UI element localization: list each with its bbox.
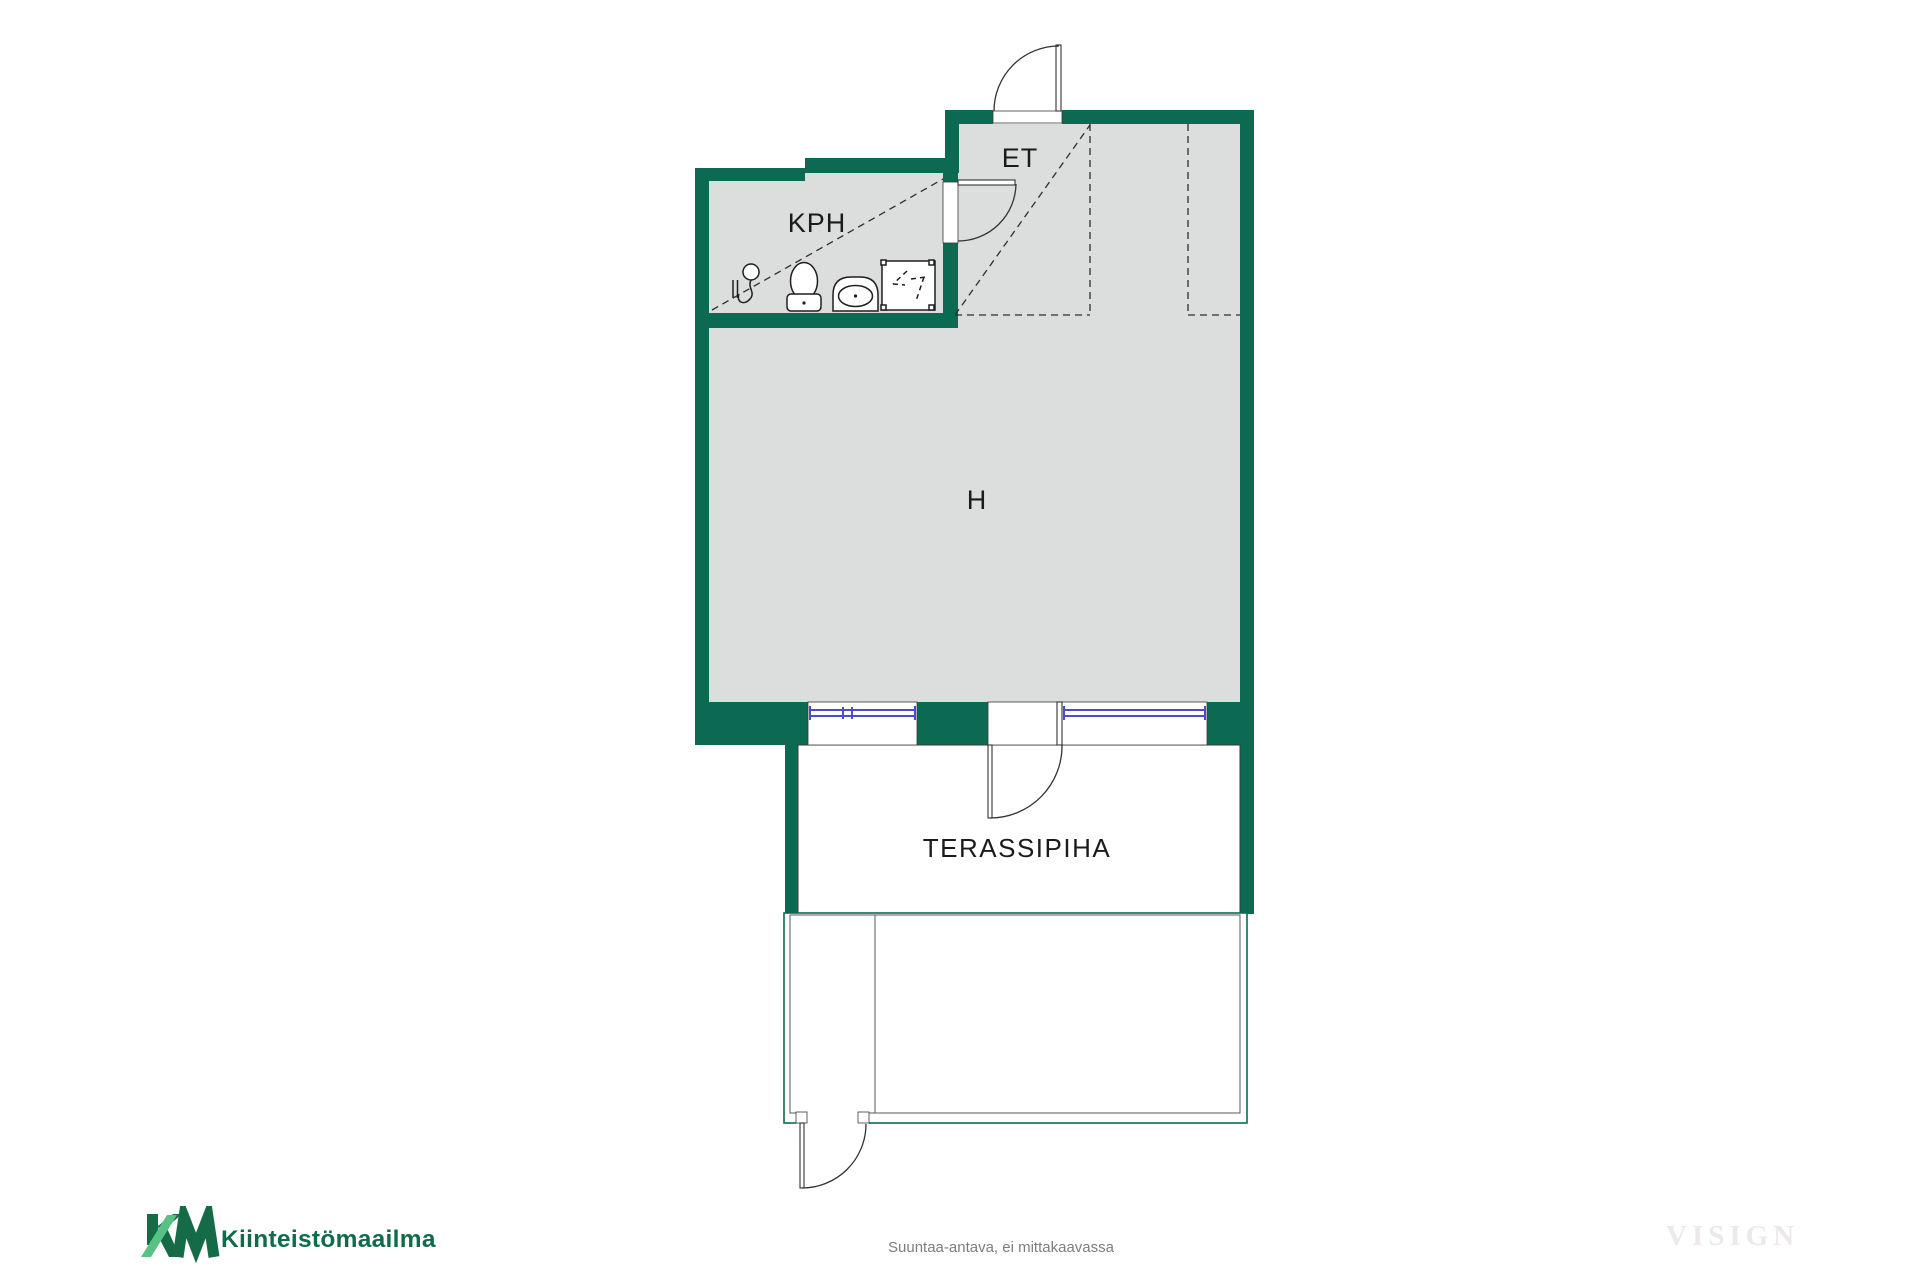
room-label-kph: KPH — [788, 208, 847, 238]
agency-logo-text: Kiinteistömaailma — [221, 1226, 436, 1254]
deck-door-swing-arc — [802, 1124, 866, 1188]
terrace-door-gap — [988, 702, 1062, 745]
entrance-door-swing-arc — [994, 46, 1059, 111]
entrance-threshold — [993, 111, 1062, 123]
disclaimer-text: Suuntaa-antava, ei mittakaavassa — [888, 1239, 1114, 1256]
entrance-door-leaf — [1056, 45, 1061, 111]
wall-segment — [805, 158, 959, 173]
shower-enclosure-icon — [881, 260, 935, 310]
deck-area — [784, 913, 1247, 1128]
wall-segment — [1207, 702, 1254, 745]
window-frame — [1062, 702, 1207, 745]
window-frame — [808, 702, 917, 745]
wall-segment — [695, 168, 805, 181]
deck-door-jamb — [858, 1112, 869, 1123]
wall-segment — [695, 168, 709, 745]
visign-watermark: VISIGN — [1666, 1220, 1799, 1253]
room-label-terassipiha: TERASSIPIHA — [923, 833, 1111, 863]
km-logo-mark — [141, 1214, 214, 1257]
floorplan-drawing: KPH ET H TERASSIPIHA — [0, 0, 1920, 1280]
room-label-h: H — [967, 485, 988, 515]
room-label-et: ET — [1002, 143, 1039, 173]
deck-door-jamb — [796, 1112, 807, 1123]
kph-door-gap — [943, 182, 958, 243]
deck-outer-border — [784, 913, 1247, 1123]
wall-segment — [695, 702, 808, 745]
sink-icon — [833, 277, 878, 311]
wall-segment — [695, 313, 958, 328]
wall-segment — [1240, 110, 1254, 914]
terrace-area — [798, 745, 1240, 913]
terrace-left-wall — [785, 745, 798, 913]
wall-segment — [943, 173, 958, 182]
wall-segment — [917, 702, 988, 745]
deck-door-leaf — [800, 1123, 804, 1188]
wall-segment — [1062, 110, 1254, 124]
wall-segment — [943, 243, 958, 313]
terrace-door-jamb — [1057, 702, 1062, 745]
kph-door-leaf — [958, 180, 1015, 185]
terrace-door-leaf — [988, 745, 992, 818]
